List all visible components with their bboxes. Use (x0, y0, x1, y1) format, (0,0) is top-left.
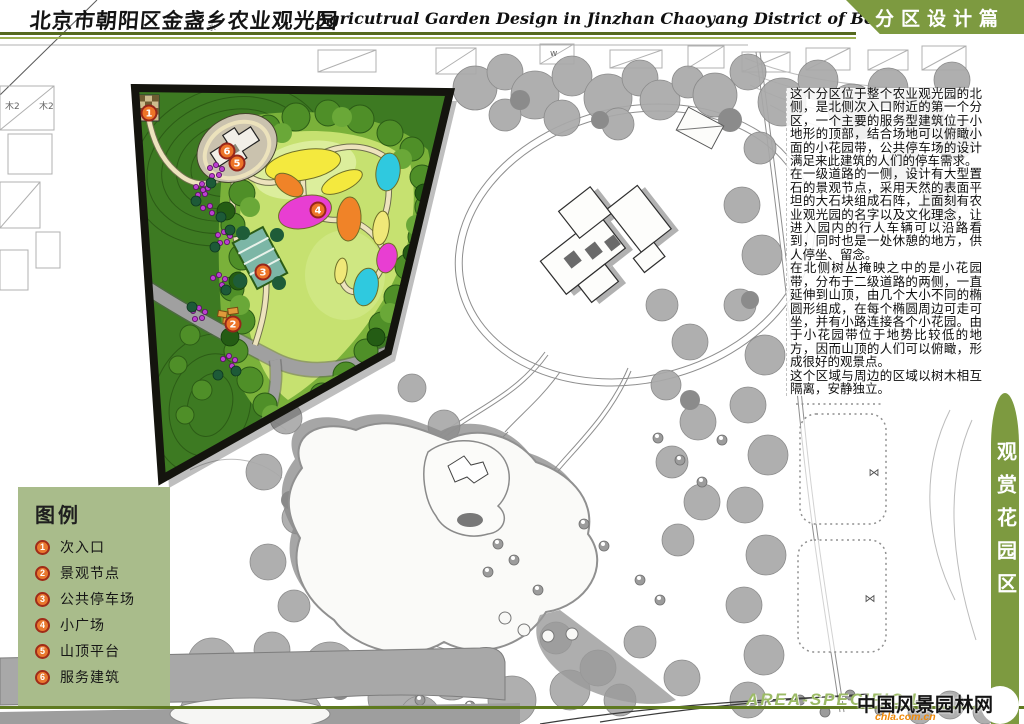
map-marker-6: 6 (220, 144, 235, 159)
svg-text:4: 4 (315, 206, 322, 217)
map-marker-3: 3 (256, 265, 271, 280)
detail-plan-inset: 1 2 3 4 5 6 (90, 75, 470, 495)
svg-text:5: 5 (234, 159, 241, 170)
legend-item-entrance: 1 次入口 (35, 537, 162, 557)
svg-text:2: 2 (230, 320, 237, 331)
svg-text:⋈: ⋈ (865, 592, 876, 605)
watermark-url: chla.com.cn (875, 711, 936, 723)
cad-label-plot-b: 木2 (39, 100, 54, 112)
vertical-section-banner: 观赏花园区 (991, 393, 1019, 724)
legend-item-hilltop-platform: 5 山顶平台 (35, 641, 162, 661)
legend-item-parking: 3 公共停车场 (35, 589, 162, 609)
legend-item-landscape-node: 2 景观节点 (35, 563, 162, 583)
description-panel: 这个分区位于整个农业观光园的北侧，是北侧次入口附近的第一个分区，一个主要的服务型… (786, 88, 982, 396)
presentation-board: 木2 木2 水 w (0, 0, 1024, 724)
section-banner-label: 分区设计篇 (875, 4, 1005, 31)
header-rule-light (0, 37, 856, 39)
legend-marker-4: 4 (35, 618, 50, 633)
map-marker-2: 2 (226, 317, 241, 332)
cad-label-plot-a: 木2 (5, 100, 20, 112)
legend-marker-6: 6 (35, 670, 50, 685)
legend-label-5: 山顶平台 (60, 641, 120, 661)
field-plots (796, 404, 886, 652)
map-marker-4: 4 (311, 203, 326, 218)
legend-title: 图例 (35, 499, 162, 528)
legend-label-3: 公共停车场 (60, 589, 135, 609)
legend-marker-5: 5 (35, 644, 50, 659)
page-number: 3 (1005, 690, 1017, 714)
legend-label-4: 小广场 (60, 615, 105, 635)
svg-text:6: 6 (224, 147, 231, 158)
legend-label-6: 服务建筑 (60, 667, 120, 687)
map-marker-1: 1 (142, 106, 157, 121)
cad-label-w: w (550, 49, 557, 59)
legend-marker-3: 3 (35, 592, 50, 607)
legend-marker-1: 1 (35, 540, 50, 555)
description-paragraph-1: 这个分区位于整个农业观光园的北侧，是北侧次入口附近的第一个分区，一个主要的服务型… (790, 88, 982, 168)
description-paragraph-2: 在一级道路的一侧，设计有大型置石的景观节点，采用天然的表面平坦的大石块组成石阵，… (790, 168, 982, 262)
legend-item-plaza: 4 小广场 (35, 615, 162, 635)
svg-text:⋈: ⋈ (869, 466, 880, 479)
svg-text:1: 1 (146, 109, 153, 120)
vertical-banner-label: 观赏花园区 (991, 441, 1020, 606)
description-paragraph-4: 这个区域与周边的区域以树木相互隔离，安静独立。 (790, 370, 982, 397)
page-title-english: Agricutrual Garden Design in Jinzhan Cha… (316, 9, 915, 28)
legend-label-2: 景观节点 (60, 563, 120, 583)
page-title-chinese: 北京市朝阳区金盏乡农业观光园 (29, 5, 340, 35)
legend-panel: 图例 1 次入口 2 景观节点 3 公共停车场 4 小广场 5 山顶平台 6 服… (18, 487, 170, 707)
legend-marker-2: 2 (35, 566, 50, 581)
description-paragraph-3: 在北侧树丛掩映之中的是小花园带，分布于二级道路的两侧，一直延伸到山顶，由几个大小… (790, 262, 982, 369)
legend-label-1: 次入口 (60, 537, 105, 557)
legend-item-service-building: 6 服务建筑 (35, 667, 162, 687)
svg-text:3: 3 (260, 268, 267, 279)
